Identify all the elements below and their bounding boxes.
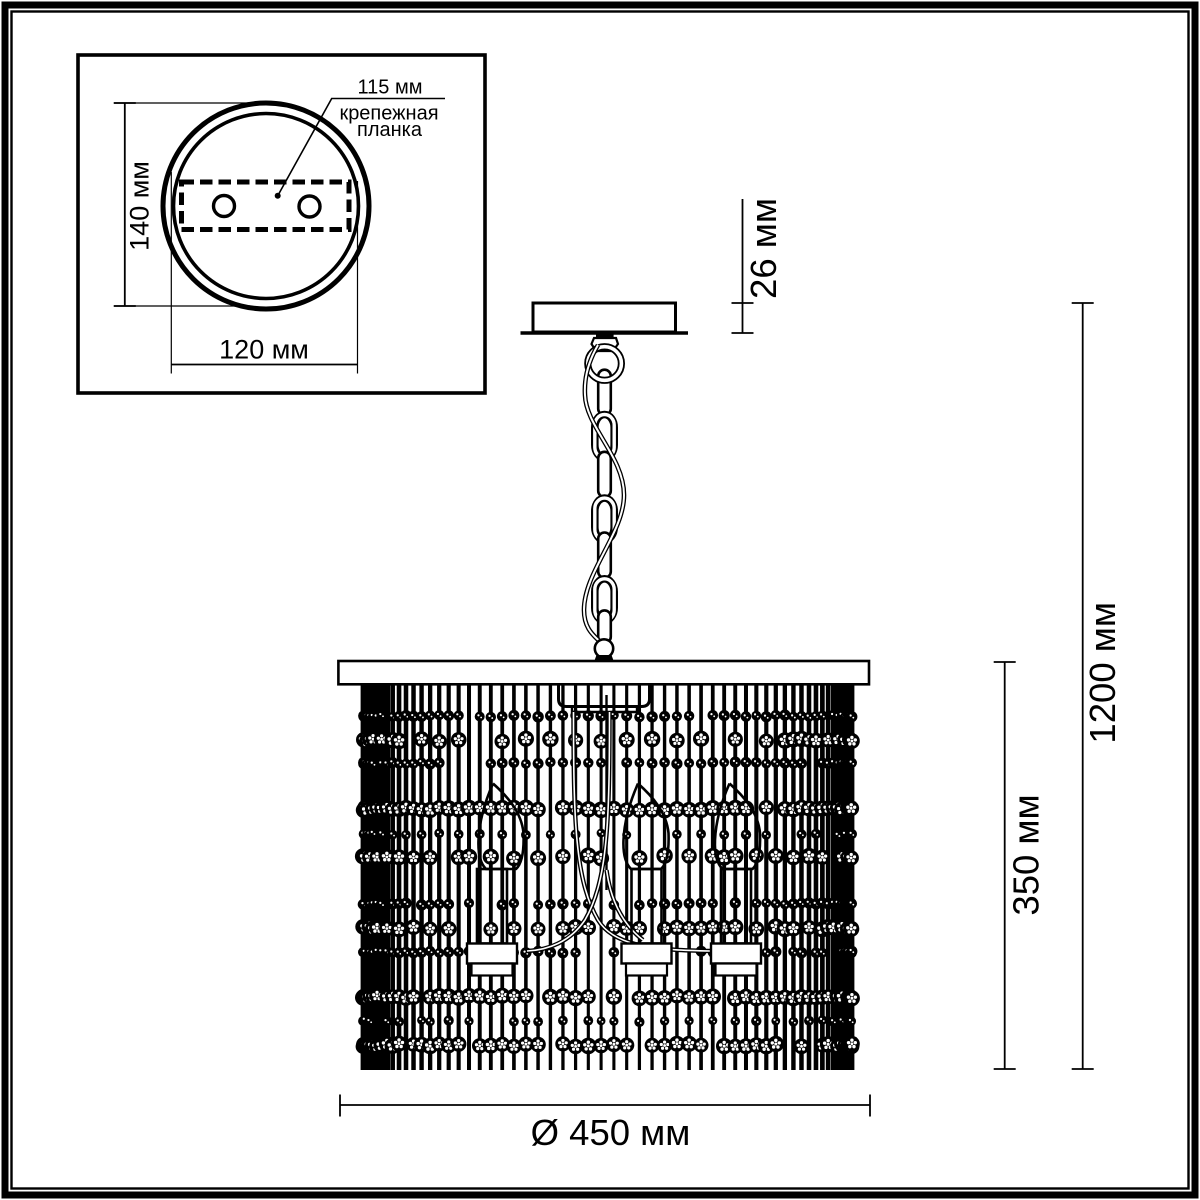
svg-text:140 мм: 140 мм <box>125 161 155 251</box>
svg-text:350 мм: 350 мм <box>1006 794 1047 915</box>
svg-text:Ø 450 мм: Ø 450 мм <box>531 1112 691 1153</box>
svg-text:115 мм: 115 мм <box>358 77 423 99</box>
svg-text:120 мм: 120 мм <box>219 335 309 365</box>
svg-text:26 мм: 26 мм <box>743 198 784 299</box>
svg-text:планка: планка <box>357 119 423 141</box>
svg-text:1200 мм: 1200 мм <box>1082 602 1123 744</box>
